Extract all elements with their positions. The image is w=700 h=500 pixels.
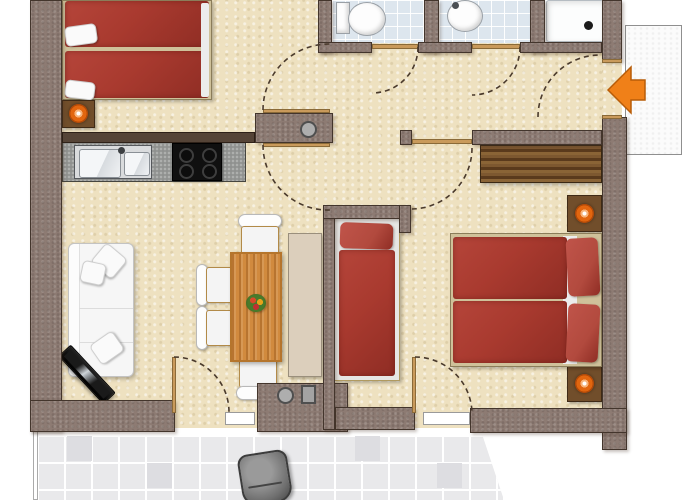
sink-basin-left xyxy=(79,149,121,178)
wall-bedroom-top-stub xyxy=(400,130,412,145)
wardrobe xyxy=(480,145,602,183)
column-round-south xyxy=(277,387,294,404)
threshold-livingroom xyxy=(263,143,330,147)
dining-chair-top xyxy=(238,214,280,254)
wall-kitchen xyxy=(62,132,255,143)
wall-outer-left xyxy=(30,0,62,432)
lamp xyxy=(575,374,594,393)
wall-bedroom-south xyxy=(470,408,627,433)
duvet xyxy=(339,250,395,376)
flower-centerpiece xyxy=(246,294,266,312)
threshold-terrace-bedroom xyxy=(423,412,470,425)
bed-double-topleft xyxy=(62,0,212,100)
shower-tray xyxy=(546,0,604,42)
burner xyxy=(179,148,194,163)
wall-hall-pier xyxy=(255,113,333,143)
column-square-south xyxy=(301,385,316,404)
sofa-seam xyxy=(79,308,133,309)
threshold-corridor xyxy=(263,109,330,113)
terrace-chair xyxy=(236,448,294,500)
bed-pillow xyxy=(64,79,96,101)
threshold-entrance-bottom xyxy=(602,115,622,119)
wall-alcove-right-stub xyxy=(399,205,411,233)
threshold-terrace-living xyxy=(225,412,255,425)
sink-basin-right xyxy=(124,152,150,176)
burner xyxy=(202,148,217,163)
lamp xyxy=(575,204,594,223)
wall-south-alcove xyxy=(335,407,415,430)
bed-pillow xyxy=(566,303,601,363)
wall-outer-right-top xyxy=(602,0,622,62)
door-leaf-living-terrace xyxy=(172,357,176,413)
wall-bath-south-3 xyxy=(520,42,602,53)
threshold-bedroom-door xyxy=(412,139,472,144)
sink-faucet xyxy=(118,147,125,154)
toilet-bowl xyxy=(348,2,386,36)
terrace-left-rail xyxy=(33,428,38,500)
wall-bedroom-top xyxy=(472,130,602,145)
dining-chair-left-2 xyxy=(196,306,232,348)
duvet xyxy=(453,237,567,299)
terrace-dark-tile xyxy=(147,463,172,488)
wall-alcove-top xyxy=(323,205,411,219)
shower-drain xyxy=(584,21,593,30)
cooktop xyxy=(172,143,222,181)
threshold-entrance-top xyxy=(602,59,622,63)
duvet xyxy=(453,301,567,363)
bed-single-alcove xyxy=(334,217,400,381)
entrance-landing xyxy=(625,25,682,155)
terrace-dark-tile xyxy=(355,436,380,461)
entrance-doorway-floor xyxy=(602,62,622,117)
wall-outer-right xyxy=(602,117,627,450)
lamp xyxy=(69,104,88,123)
bed-pillow xyxy=(566,237,601,297)
wall-alcove-left xyxy=(323,205,335,430)
washbasin-faucet xyxy=(452,2,459,9)
terrace-dark-tile xyxy=(437,463,462,488)
wall-south-livingroom xyxy=(30,400,175,432)
sofa-cushion xyxy=(89,330,126,366)
terrace-chair-seat-line xyxy=(248,481,282,488)
sofa-cushion xyxy=(79,260,107,287)
bed-double-right xyxy=(450,233,602,367)
terrace-dark-tile xyxy=(67,436,92,461)
kitchen-sink-unit xyxy=(74,145,152,179)
wall-bath-south-1 xyxy=(318,42,372,53)
floor-plan xyxy=(0,0,700,500)
threshold-bath2 xyxy=(472,44,520,49)
burner xyxy=(179,164,194,179)
door-leaf-bedroom-terrace xyxy=(412,357,416,413)
sideboard xyxy=(288,233,322,377)
bed-sheet-edge xyxy=(201,3,209,97)
terrace xyxy=(33,428,505,500)
wall-bath-south-2 xyxy=(418,42,472,53)
dining-chair-left-1 xyxy=(196,264,232,304)
bed-pillow xyxy=(340,222,394,250)
threshold-bath1 xyxy=(372,44,418,49)
burner xyxy=(202,164,217,179)
column-round-pier xyxy=(300,121,317,138)
